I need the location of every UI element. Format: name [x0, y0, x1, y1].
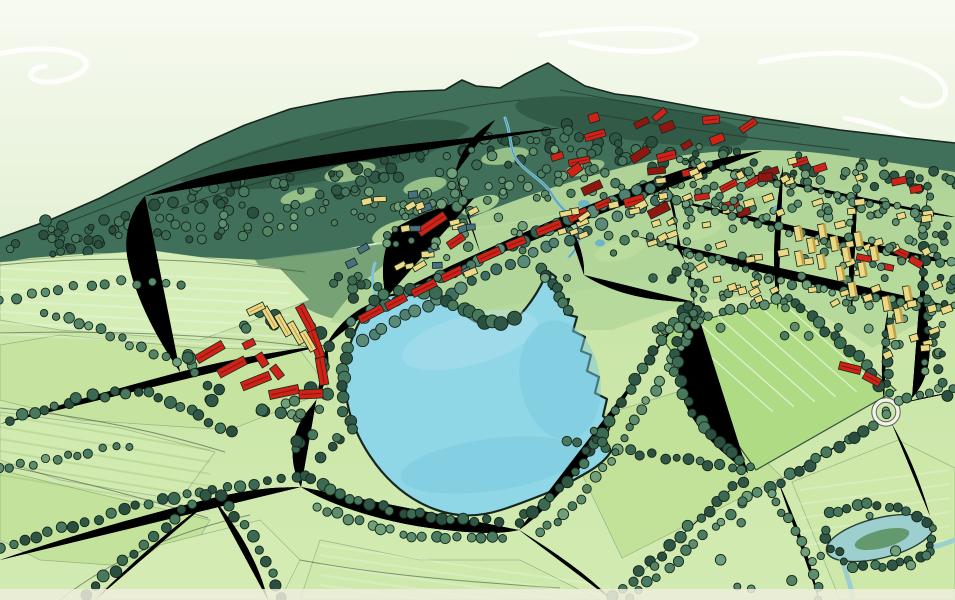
masterplan-illustration: [0, 0, 955, 600]
town-pond: [595, 240, 605, 247]
masterplan-stage: [0, 0, 955, 600]
paper-edge-strip: [0, 589, 955, 600]
